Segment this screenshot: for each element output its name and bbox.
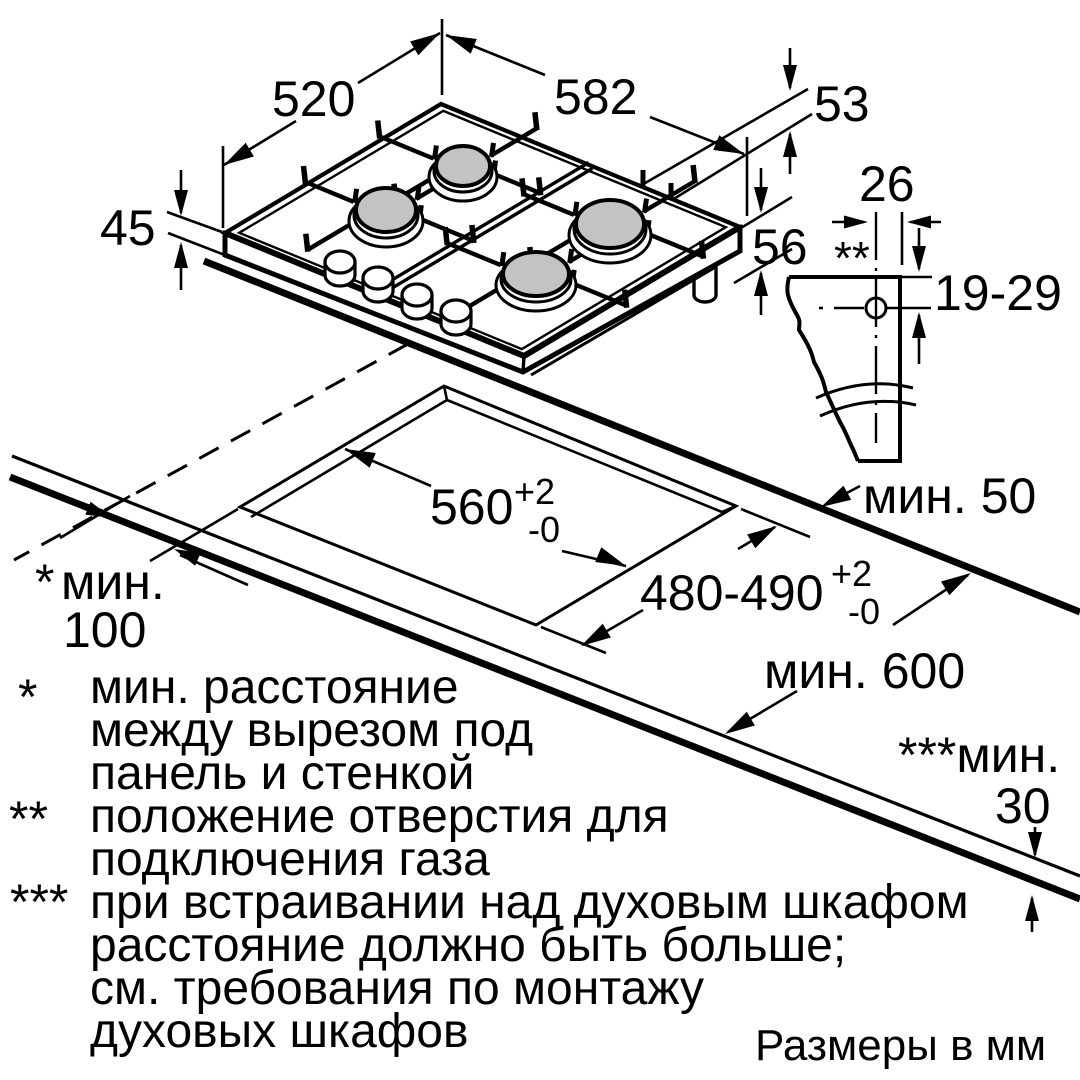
svg-text:духовых шкафов: духовых шкафов [90,1005,468,1058]
svg-text:-0: -0 [848,591,880,632]
svg-text:**: ** [9,791,48,847]
svg-text:30: 30 [995,778,1051,834]
svg-text:+2: +2 [514,471,555,512]
svg-text:45: 45 [100,200,156,256]
svg-text:+2: +2 [831,553,872,594]
svg-text:***мин.: ***мин. [898,727,1060,783]
svg-text:**: ** [834,232,870,284]
svg-text:26: 26 [859,156,915,212]
svg-text:мин. 50: мин. 50 [863,468,1036,524]
svg-text:53: 53 [814,76,870,132]
svg-text:*: * [18,669,37,725]
svg-text:***: *** [10,874,68,930]
svg-text:56: 56 [752,219,808,275]
svg-text:-0: -0 [528,509,560,550]
svg-text:Размеры в мм: Размеры в мм [755,1021,1046,1070]
svg-text:мин. 600: мин. 600 [764,643,965,699]
svg-text:19-29: 19-29 [934,265,1062,321]
svg-text:480-490: 480-490 [640,565,824,621]
svg-text:582: 582 [554,69,637,125]
svg-text:520: 520 [272,71,355,127]
svg-text:*: * [35,554,54,610]
svg-text:560: 560 [430,479,513,535]
svg-text:100: 100 [63,602,146,658]
